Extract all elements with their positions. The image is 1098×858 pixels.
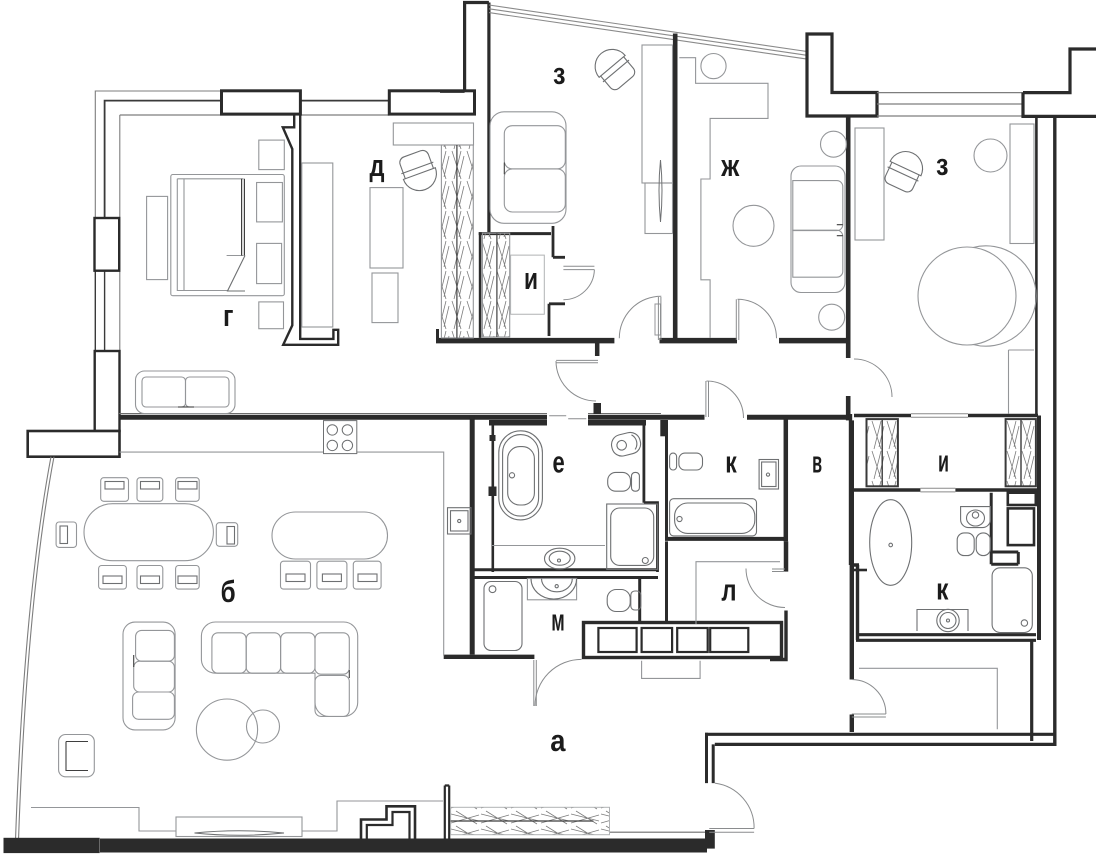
svg-text:а: а xyxy=(550,723,566,758)
svg-text:м: м xyxy=(551,603,565,638)
svg-text:з: з xyxy=(553,56,566,91)
svg-text:ж: ж xyxy=(720,148,740,183)
svg-text:в: в xyxy=(812,445,822,480)
svg-text:е: е xyxy=(553,445,565,480)
svg-text:л: л xyxy=(721,572,736,607)
svg-text:г: г xyxy=(223,298,234,333)
svg-text:к: к xyxy=(725,445,737,480)
svg-text:б: б xyxy=(221,574,236,609)
svg-text:д: д xyxy=(370,148,385,183)
svg-text:и: и xyxy=(938,444,949,479)
svg-text:к: к xyxy=(936,571,949,606)
svg-text:и: и xyxy=(524,261,538,296)
svg-text:з: з xyxy=(936,147,949,182)
